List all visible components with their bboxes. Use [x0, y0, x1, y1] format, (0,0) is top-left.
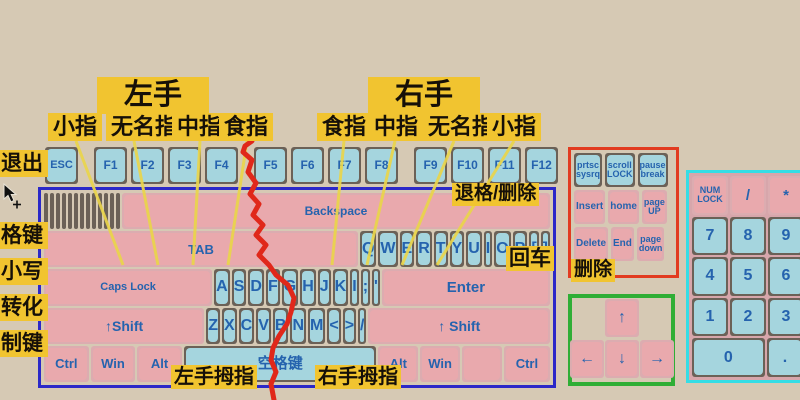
key-less-than-label: < — [329, 310, 338, 342]
key-delete-label: Delete — [576, 229, 606, 259]
key-blank — [462, 346, 502, 382]
key-decimal-label: . — [769, 340, 800, 375]
key-8: 8 — [730, 217, 766, 256]
key-f4: F4 — [205, 147, 238, 184]
key-scroll-lock-label: scroll LOCK — [607, 155, 633, 185]
right-thumb-annotation: 右手拇指 — [315, 365, 401, 389]
key-5: 5 — [730, 257, 766, 296]
key-v-label: V — [258, 310, 269, 342]
key-semicolon-label: ; — [363, 271, 368, 303]
key-b: B — [273, 308, 289, 344]
key-a-label: A — [216, 271, 228, 303]
key-q-label: Q — [362, 233, 374, 265]
key-w-label: W — [380, 233, 395, 265]
key-semicolon: ; — [361, 269, 370, 305]
key-caps-lock-label: Caps Lock — [46, 271, 210, 303]
key-ctrl-right: Ctrl — [504, 346, 550, 382]
key-pause-break-label: pause break — [640, 155, 666, 185]
backspace-annotation: 退格/删除 — [452, 183, 539, 206]
key-arrow-left-label: ← — [572, 342, 602, 376]
key-a: A — [214, 269, 230, 305]
key-arrow-down: ↓ — [605, 340, 639, 378]
key-f9-label: F9 — [416, 149, 445, 182]
key-i: I — [484, 231, 492, 267]
key-greater-than: > — [343, 308, 356, 344]
key-u-label: U — [468, 233, 480, 265]
key-f10-label: F10 — [453, 149, 482, 182]
key-e: E — [400, 231, 415, 267]
key-shift-right-label: ↑ Shift — [370, 310, 548, 342]
key-pause-break: pause break — [638, 153, 668, 187]
key-q: Q — [360, 231, 376, 267]
key-w: W — [378, 231, 397, 267]
key-f12-label: F12 — [527, 149, 556, 182]
key-z: Z — [206, 308, 220, 344]
key-h: H — [300, 269, 316, 305]
key-f1-label: F1 — [96, 149, 125, 182]
key-apostrophe: ' — [372, 269, 380, 305]
key-z-label: Z — [208, 310, 218, 342]
key-prtsc-sysrq-label: prtsc sysrq — [576, 155, 600, 185]
key-9-label: 9 — [770, 219, 800, 254]
key-m: M — [308, 308, 325, 344]
key-minus: -_ — [110, 193, 114, 229]
key-page-up-label: page UP — [644, 192, 665, 222]
key-t: T — [434, 231, 448, 267]
finger-label-left-ring: 无名指 — [106, 113, 182, 141]
key-f11-label: F11 — [490, 149, 519, 182]
key-enter-label: Enter — [384, 271, 548, 303]
key-page-up: page UP — [642, 190, 667, 224]
key-6: ^6 — [80, 193, 84, 229]
key-ctrl-left-label: Ctrl — [46, 348, 87, 380]
key-delete: Delete — [574, 227, 608, 261]
key-1-label: 1 — [694, 300, 726, 335]
key-f7-label: F7 — [330, 149, 359, 182]
key-decimal: . — [767, 338, 800, 377]
key-5: %5 — [74, 193, 78, 229]
key-x: X — [222, 308, 237, 344]
key-f2: F2 — [131, 147, 164, 184]
key-tab: TAB — [44, 231, 358, 267]
key-f5: F5 — [254, 147, 287, 184]
key-win-right-label: Win — [422, 348, 458, 380]
key-1: 1 — [692, 298, 728, 337]
key-f4-label: F4 — [207, 149, 236, 182]
key-slash-label: / — [360, 310, 364, 342]
enter-annotation: 回车 — [506, 246, 554, 271]
key-7: 7 — [692, 217, 728, 256]
delete-annotation: 删除 — [571, 259, 615, 282]
key-0-label: 0 — [694, 340, 763, 375]
key-r: R — [416, 231, 432, 267]
key-f8: F8 — [365, 147, 398, 184]
finger-label-right-middle: 中指 — [369, 113, 423, 141]
key-f8-label: F8 — [367, 149, 396, 182]
key-arrow-right: → — [640, 340, 674, 378]
key-f2-label: F2 — [133, 149, 162, 182]
key-l-position: I — [350, 269, 358, 305]
keyboard-row: 123 — [692, 298, 800, 337]
key-9: 9 — [768, 217, 800, 256]
key-end: End — [611, 227, 634, 261]
key-5-label: 5 — [732, 259, 764, 294]
function-key-row: ESCF1F2F3F4F5F6F7F8F9F10F11F12 — [45, 147, 562, 184]
key-multiply: * — [768, 176, 800, 215]
key-d: D — [248, 269, 264, 305]
key-arrow-right-label: → — [642, 342, 672, 376]
key-4: 4 — [692, 257, 728, 296]
side-label-ctrl: 制键 — [0, 330, 48, 357]
key-greater-than-label: > — [345, 310, 354, 342]
left-hand-label: 左手 — [97, 77, 209, 114]
key-v: V — [256, 308, 271, 344]
key-g-label: G — [284, 271, 296, 303]
key-3-label: 3 — [770, 300, 800, 335]
key-k: K — [333, 269, 349, 305]
key-page-down: page down — [637, 227, 665, 261]
key-arrow-down-label: ↓ — [607, 342, 637, 376]
key-3: #3 — [62, 193, 66, 229]
key-arrow-up-label: ↑ — [607, 301, 637, 335]
key-h-label: H — [302, 271, 314, 303]
keyboard-row: CtrlWinAlt空格键AltWinCtrl — [44, 346, 550, 382]
right-hand-label: 右手 — [368, 77, 480, 114]
key-j-label: J — [320, 271, 329, 303]
key-end-label: End — [613, 229, 632, 259]
key-d-label: D — [250, 271, 262, 303]
key-0: 0 — [692, 338, 765, 377]
key-c-label: C — [241, 310, 253, 342]
mouse-cursor-icon — [2, 183, 26, 214]
key-k-label: K — [335, 271, 347, 303]
main-keyboard: ~`!1@2#3$4%5^6&7*8(9)0-_+=BackspaceTABQW… — [38, 187, 556, 388]
key-f6-label: F6 — [293, 149, 322, 182]
key-2: @2 — [56, 193, 60, 229]
key-j: J — [318, 269, 331, 305]
key-enter: Enter — [382, 269, 550, 305]
key-apostrophe-label: ' — [374, 271, 378, 303]
key-0: )0 — [104, 193, 108, 229]
key-prtsc-sysrq: prtsc sysrq — [574, 153, 602, 187]
key-f7: F7 — [328, 147, 361, 184]
key-slash: / — [358, 308, 366, 344]
key-s-label: S — [234, 271, 245, 303]
key-l-position-label: I — [352, 271, 356, 303]
key-4: $4 — [68, 193, 72, 229]
key-f3-label: F3 — [170, 149, 199, 182]
key-arrow-up: ↑ — [605, 299, 639, 337]
key-win-right: Win — [420, 346, 460, 382]
key-num-lock-label: NUM LOCK — [694, 178, 726, 213]
key-r-label: R — [418, 233, 430, 265]
key-f11: F11 — [488, 147, 521, 184]
keyboard-row: Inserthomepage UP — [574, 190, 673, 224]
key-f10: F10 — [451, 147, 484, 184]
side-label-esc: 退出 — [0, 150, 48, 177]
key-g: G — [282, 269, 298, 305]
keyboard-row: TABQWERTYUIOP[] — [44, 231, 550, 267]
key-f5-label: F5 — [256, 149, 285, 182]
key-win-left: Win — [91, 346, 136, 382]
side-label-tab: 格键 — [0, 222, 48, 249]
key-equals: += — [116, 193, 120, 229]
arrow-key-cluster: ↑ ← ↓ → — [568, 294, 675, 386]
key-shift-left-label: ↑Shift — [46, 310, 202, 342]
keyboard-row: 0. — [692, 338, 800, 377]
key-multiply-label: * — [770, 178, 800, 213]
key-s: S — [232, 269, 247, 305]
key-f3: F3 — [168, 147, 201, 184]
finger-label-right-index: 食指 — [317, 113, 371, 141]
key-f1: F1 — [94, 147, 127, 184]
key-blank-label — [464, 348, 500, 380]
key-2-label: 2 — [732, 300, 764, 335]
keyboard-finger-diagram: ESCF1F2F3F4F5F6F7F8F9F10F11F12 ~`!1@2#3$… — [0, 0, 800, 400]
key-tab-label: TAB — [46, 233, 356, 265]
key-arrow-left: ← — [570, 340, 604, 378]
key-num-lock: NUM LOCK — [692, 176, 728, 215]
finger-label-left-middle: 中指 — [172, 113, 226, 141]
finger-label-left-pinky: 小指 — [48, 113, 102, 141]
key-insert-label: Insert — [576, 192, 603, 222]
keyboard-row: NUM LOCK/* — [692, 176, 800, 215]
key-x-label: X — [224, 310, 235, 342]
key-u: U — [466, 231, 482, 267]
key-home: home — [608, 190, 639, 224]
key-n: N — [290, 308, 306, 344]
key-page-down-label: page down — [639, 229, 663, 259]
key-esc-label: ESC — [47, 149, 76, 182]
key-3: 3 — [768, 298, 800, 337]
key-scroll-lock: scroll LOCK — [605, 153, 635, 187]
finger-label-right-pinky: 小指 — [487, 113, 541, 141]
key-6-label: 6 — [770, 259, 800, 294]
key-shift-left: ↑Shift — [44, 308, 204, 344]
keyboard-row: ↑ShiftZXCVBNM<>/↑ Shift — [44, 308, 550, 344]
key-8: *8 — [92, 193, 96, 229]
key-6: 6 — [768, 257, 800, 296]
finger-label-left-index: 食指 — [219, 113, 273, 141]
key-4-label: 4 — [694, 259, 726, 294]
key-1: !1 — [50, 193, 54, 229]
key-less-than: < — [327, 308, 340, 344]
key-shift-right: ↑ Shift — [368, 308, 550, 344]
key-f9: F9 — [414, 147, 447, 184]
key-7-label: 7 — [694, 219, 726, 254]
key-9: (9 — [98, 193, 102, 229]
key-2: 2 — [730, 298, 766, 337]
keyboard-row: Caps LockASDFGHJKI;'Enter — [44, 269, 550, 305]
key-b-label: B — [275, 310, 287, 342]
key-esc: ESC — [45, 147, 78, 184]
key-f: F — [266, 269, 280, 305]
keyboard-row: DeleteEndpage down — [574, 227, 673, 261]
key-divide-label: / — [732, 178, 764, 213]
side-label-caps: 小写 — [0, 258, 48, 285]
key-c: C — [239, 308, 255, 344]
key-t-label: T — [436, 233, 446, 265]
key-i-label: I — [486, 233, 490, 265]
key-insert: Insert — [574, 190, 605, 224]
key-caps-lock: Caps Lock — [44, 269, 212, 305]
keyboard-row: prtsc sysrqscroll LOCKpause break — [574, 153, 673, 187]
key-home-label: home — [610, 192, 637, 222]
key-n-label: N — [292, 310, 304, 342]
numpad-cluster: NUM LOCK/*7894561230. — [686, 170, 800, 383]
key-e-label: E — [402, 233, 413, 265]
key-y: Y — [450, 231, 465, 267]
left-thumb-annotation: 左手拇指 — [171, 365, 257, 389]
key-ctrl-left: Ctrl — [44, 346, 89, 382]
key-f-label: F — [268, 271, 278, 303]
key-win-left-label: Win — [93, 348, 134, 380]
keyboard-row: 789 — [692, 217, 800, 256]
key-7: &7 — [86, 193, 90, 229]
key-8-label: 8 — [732, 219, 764, 254]
side-label-shift: 转化 — [0, 294, 48, 321]
key-divide: / — [730, 176, 766, 215]
key-m-label: M — [310, 310, 323, 342]
keyboard-row: 456 — [692, 257, 800, 296]
key-y-label: Y — [452, 233, 463, 265]
key-f6: F6 — [291, 147, 324, 184]
key-ctrl-right-label: Ctrl — [506, 348, 548, 380]
key-f12: F12 — [525, 147, 558, 184]
